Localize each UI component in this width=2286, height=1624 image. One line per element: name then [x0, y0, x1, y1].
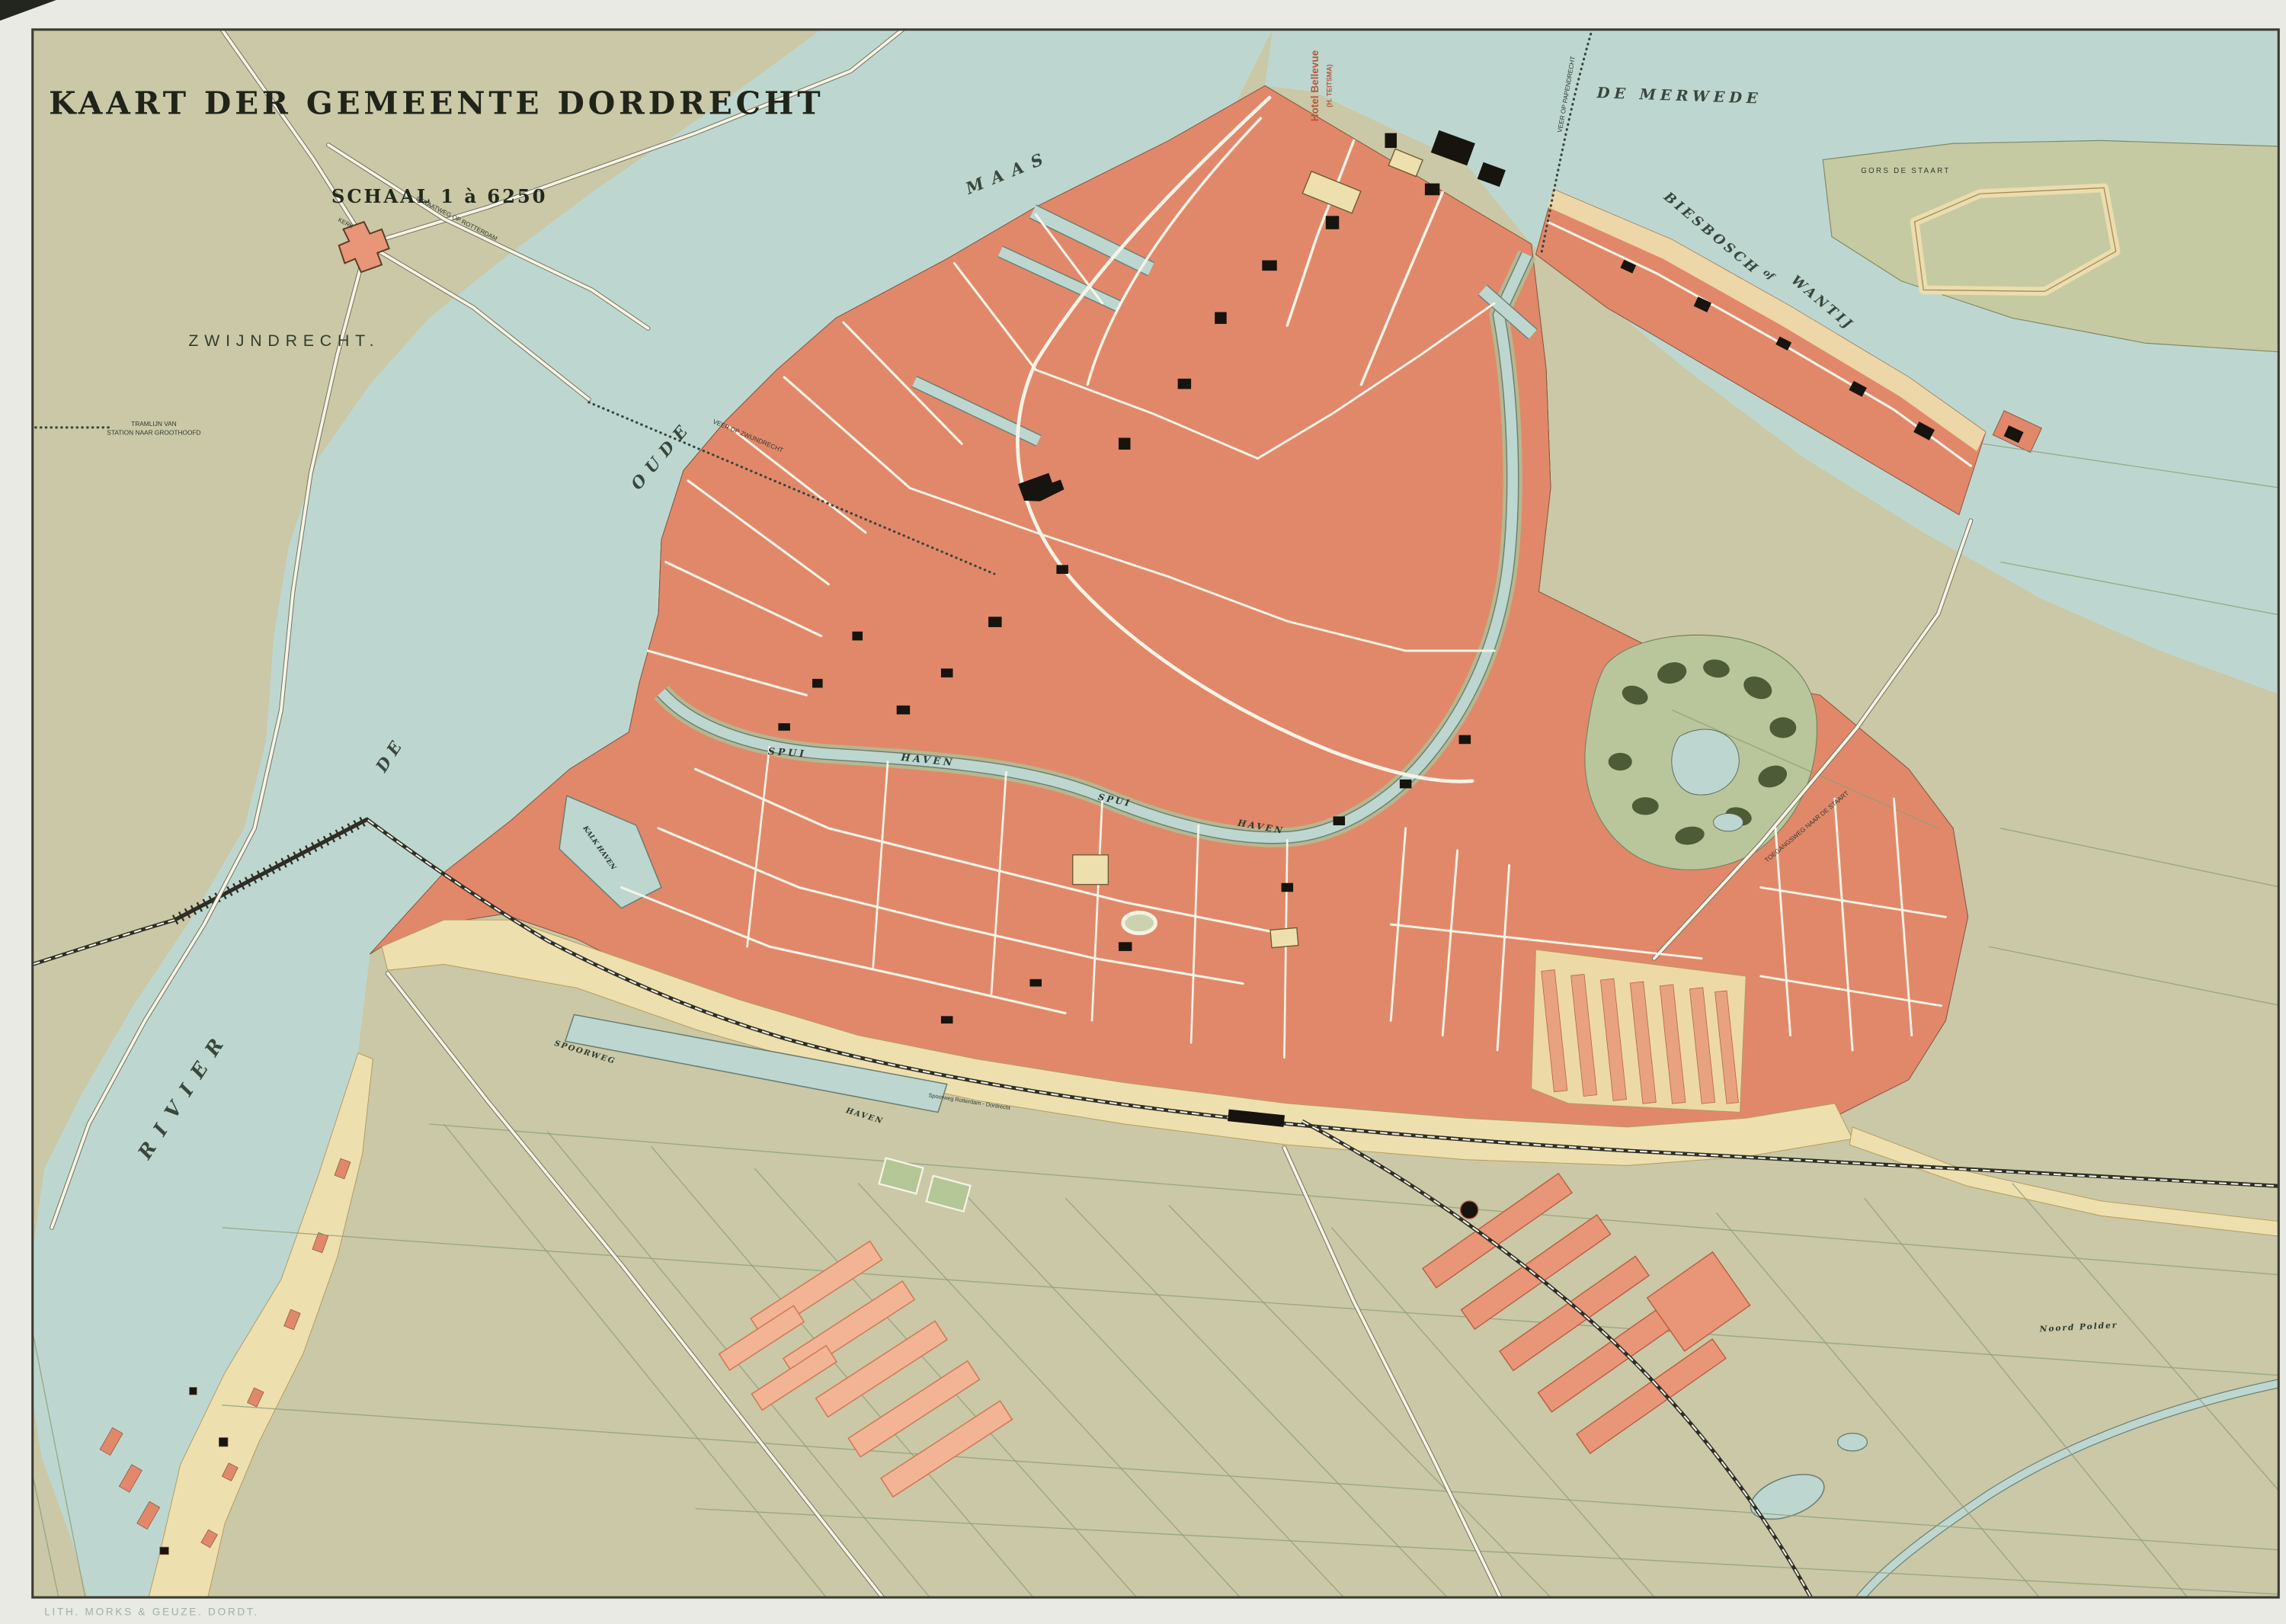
label-hotel-bellevue: Hotel Bellevue — [1309, 50, 1321, 121]
label-tramlijn-1: TRAMLIJN VAN — [131, 420, 177, 428]
label-gors-de-staart: GORS DE STAART — [1861, 167, 1950, 175]
lithographer-credit: LITH. MORKS & GEUZE. DORDT. — [44, 1606, 259, 1617]
park-oval — [1123, 912, 1156, 933]
label-hotel-bellevue-sub: (H. TEITSMA) — [1326, 64, 1333, 107]
yellow-grid-district — [1532, 950, 1747, 1112]
gas-holder — [1461, 1201, 1478, 1219]
dordrecht-map-svg: KAART DER GEMEENTE DORDRECHT SCHAAL 1 à … — [0, 0, 2286, 1624]
scale-label: SCHAAL 1 à 6250 — [331, 185, 548, 207]
map-title: KAART DER GEMEENTE DORDRECHT — [49, 85, 824, 121]
label-zwijndrecht: ZWIJNDRECHT. — [188, 332, 379, 350]
map-photo: { "map": { "title": "KAART DER GEMEENTE … — [0, 0, 2286, 1624]
label-tramlijn-2: STATION NAAR GROOTHOOFD — [107, 429, 200, 437]
